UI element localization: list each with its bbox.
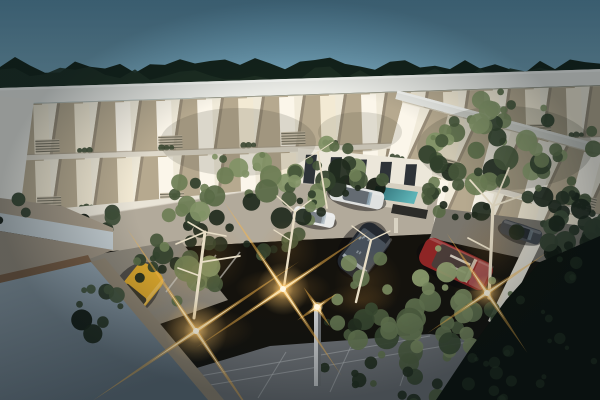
rendering-canvas xyxy=(0,0,600,400)
architectural-rendering xyxy=(0,0,600,400)
vignette xyxy=(0,0,600,400)
